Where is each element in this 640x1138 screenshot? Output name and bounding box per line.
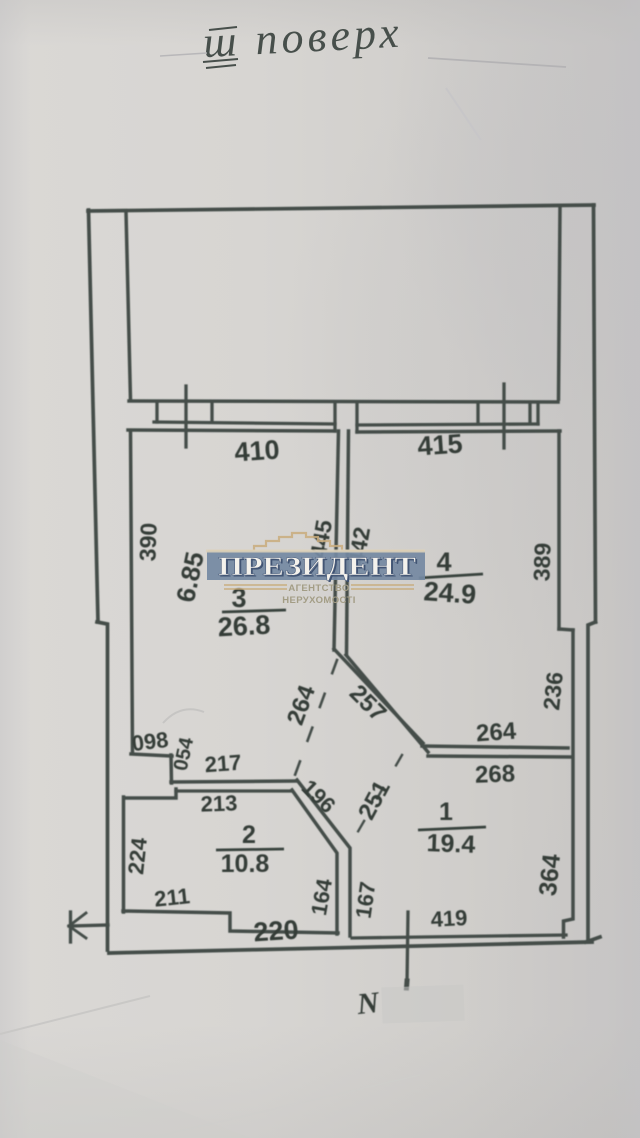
svg-text:268: 268 (475, 760, 516, 788)
svg-text:410: 410 (233, 434, 280, 467)
svg-text:24.9: 24.9 (423, 576, 478, 610)
svg-text:213: 213 (200, 790, 238, 816)
svg-text:19.4: 19.4 (426, 829, 476, 859)
svg-text:АГЕНТСТВО: АГЕНТСТВО (288, 583, 349, 594)
svg-text:10.8: 10.8 (221, 850, 270, 878)
svg-text:211: 211 (153, 883, 191, 912)
svg-text:1: 1 (439, 798, 453, 826)
svg-text:236: 236 (538, 671, 568, 712)
svg-text:ш поверх: ш поверх (202, 8, 404, 67)
svg-text:224: 224 (123, 836, 152, 876)
svg-text:26.8: 26.8 (217, 610, 271, 643)
svg-text:264: 264 (475, 718, 517, 748)
svg-text:364: 364 (534, 853, 566, 898)
svg-text:2: 2 (242, 821, 256, 849)
svg-text:4: 4 (436, 547, 451, 577)
svg-text:217: 217 (204, 750, 242, 778)
svg-text:НЕРУХОМОСТІ: НЕРУХОМОСТІ (282, 595, 356, 606)
svg-text:415: 415 (416, 428, 463, 461)
svg-text:ПРЕЗИДЕНТ: ПРЕЗИДЕНТ (218, 552, 416, 581)
svg-text:3: 3 (231, 583, 246, 613)
svg-text:167: 167 (351, 880, 381, 920)
svg-text:098: 098 (130, 727, 169, 756)
svg-text:389: 389 (528, 542, 555, 581)
svg-text:390: 390 (134, 522, 161, 561)
svg-text:220: 220 (252, 914, 299, 947)
svg-text:419: 419 (430, 905, 468, 932)
